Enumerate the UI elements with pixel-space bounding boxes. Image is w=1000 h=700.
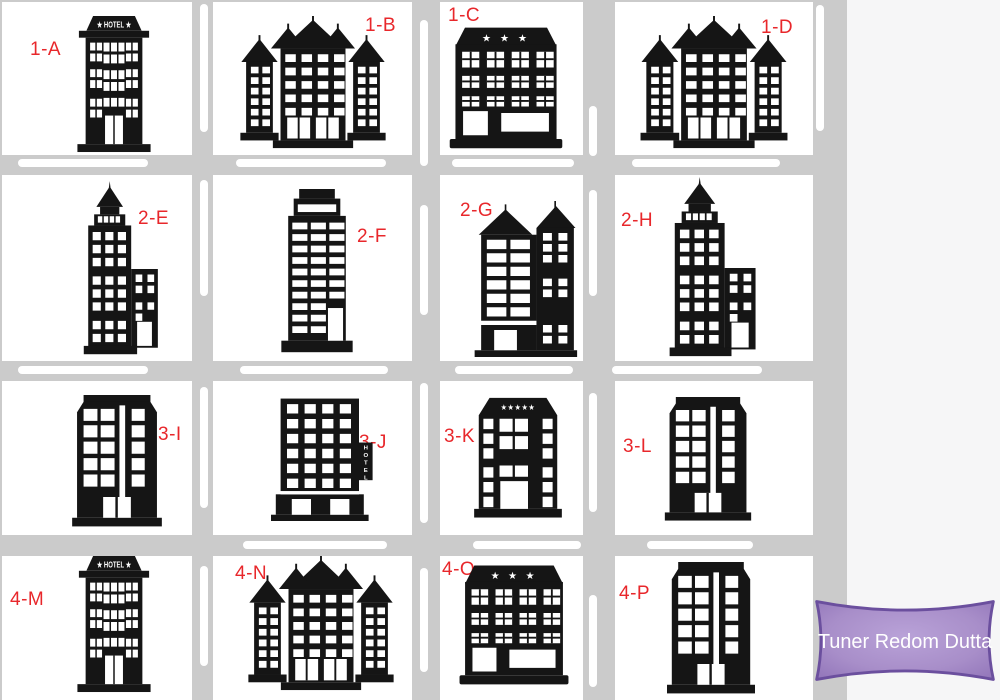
road-marking — [18, 159, 148, 167]
building-icon-spire-skyscraper — [66, 181, 166, 357]
badge-text: Tuner Redom Dutta — [818, 631, 993, 653]
map-cell-4p[interactable]: 4-P — [615, 556, 813, 700]
road-marking — [612, 366, 762, 374]
road-marking — [200, 566, 208, 666]
road-marking — [243, 541, 387, 549]
map-cell-1d[interactable]: 1-D — [615, 2, 813, 155]
road-marking — [473, 541, 581, 549]
building-icon-castle-hotel — [235, 556, 407, 692]
map-cell-2h[interactable]: 2-H — [615, 175, 813, 361]
road-marking — [18, 366, 148, 374]
road-marking — [200, 180, 208, 296]
building-icon-stripe-tower — [659, 562, 763, 696]
map-cell-3l[interactable]: 3-L — [615, 381, 813, 535]
cell-label: 4-M — [10, 590, 44, 609]
building-icon-stripe-tower — [657, 397, 759, 523]
road-marking — [647, 541, 753, 549]
road-marking — [589, 106, 597, 156]
building-icon-office-tower — [269, 189, 365, 357]
watermark-badge: Tuner Redom Dutta — [810, 593, 1000, 688]
map-cell-2e[interactable]: 2-E — [2, 175, 192, 361]
building-icon-castle-hotel — [627, 16, 801, 150]
building-icon-twin-tower — [460, 201, 582, 357]
cell-label: 4-P — [619, 584, 650, 603]
building-icon-castle-hotel — [227, 16, 399, 150]
road-marking — [240, 366, 388, 374]
road-marking — [200, 387, 208, 508]
map-cell-2g[interactable]: 2-G — [440, 175, 583, 361]
map-cell-2f[interactable]: 2-F — [213, 175, 412, 361]
building-icon-stripe-tower — [64, 395, 170, 529]
map-cell-1c[interactable]: 1-C — [440, 2, 583, 155]
cell-label: 1-A — [30, 40, 61, 59]
road-marking — [236, 159, 386, 167]
road-marking — [420, 568, 428, 672]
map-cell-4m[interactable]: 4-M — [2, 556, 192, 700]
building-icon-five-star-hotel — [468, 391, 568, 521]
map-cell-1b[interactable]: 1-B — [213, 2, 412, 155]
road-marking — [589, 190, 597, 296]
road-marking — [589, 595, 597, 687]
map-cell-1a[interactable]: 1-A — [2, 2, 192, 155]
road-marking — [455, 366, 573, 374]
building-icon-spire-skyscraper — [649, 177, 765, 359]
building-icon-vertical-sign-hotel — [263, 397, 383, 521]
city-map: ★ HOTEL ★ — [0, 0, 1000, 700]
road-marking — [420, 20, 428, 166]
building-icon-three-star-hotel — [444, 22, 568, 152]
road-marking — [420, 383, 428, 523]
road-marking — [589, 393, 597, 512]
road-marking — [632, 159, 780, 167]
map-cell-3i[interactable]: 3-I — [2, 381, 192, 535]
map-cell-4o[interactable]: 4-O — [440, 556, 583, 700]
map-cell-3k[interactable]: 3-K — [440, 381, 583, 535]
road-marking — [452, 159, 574, 167]
road-marking — [816, 5, 824, 131]
building-icon-hotel-banner — [58, 16, 170, 154]
road-marking — [200, 4, 208, 132]
building-icon-three-star-hotel — [454, 560, 574, 688]
building-icon-hotel-banner — [58, 556, 170, 694]
cell-label: 3-L — [623, 437, 652, 456]
map-cell-4n[interactable]: 4-N — [213, 556, 412, 700]
map-cell-3j[interactable]: 3-J — [213, 381, 412, 535]
road-marking — [420, 205, 428, 315]
